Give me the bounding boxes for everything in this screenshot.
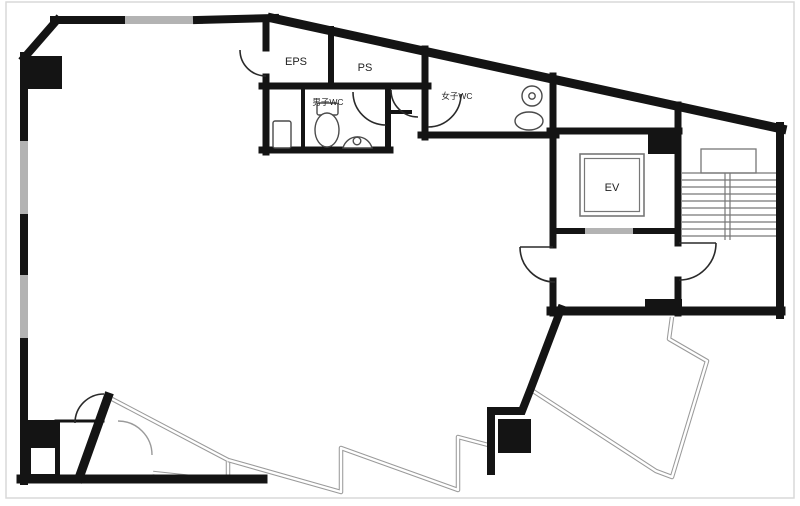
terrace-sawtooth-mid-core [228,437,492,492]
doors [75,50,716,423]
terrace-door-arc [118,421,152,455]
stair-landing [701,149,756,173]
hall-door-arc [520,247,555,282]
terrace-sawtooth-left-core [112,399,228,481]
sink-drain-icon [353,137,361,145]
mens-wc-door-arc [353,92,386,125]
floor-plan: EV EPS PS 男子WC 女子WC [0,0,800,506]
toilet-bowl-icon [515,112,543,130]
room-labels: EPS PS 男子WC 女子WC [285,56,473,107]
womens-wc-fixtures [515,86,543,130]
terrace-right [533,317,707,477]
urinal-icon [273,121,291,148]
mens-wc-fixtures [273,103,372,148]
room-label-eps: EPS [285,56,307,68]
basin-drain-icon [529,93,535,99]
stair-treads [682,173,776,236]
stair-door-arc [679,243,716,280]
terrace-sawtooth-mid [228,437,492,492]
room-label-ev: EV [605,182,620,194]
entry-diagonal-wall [79,397,108,478]
elevator-shaft: EV [580,154,644,216]
terrace-outlines [112,317,707,492]
column-bottom-left-notch [31,448,55,474]
column-south [498,419,531,453]
toilet-bowl-icon [315,113,339,147]
sheet-border [6,2,794,498]
room-label-womens-wc: 女子WC [441,91,472,101]
terrace-sawtooth-left [112,399,228,481]
interior-walls [56,19,679,421]
column-top-left [22,56,62,89]
room-label-mens-wc: 男子WC [312,97,343,107]
room-label-ps: PS [358,62,373,74]
stairwell [682,149,776,240]
columns [20,56,682,477]
stair-stringer [725,173,730,240]
eps-door-arc [240,50,266,76]
corner-chamfer-wall [24,20,57,58]
